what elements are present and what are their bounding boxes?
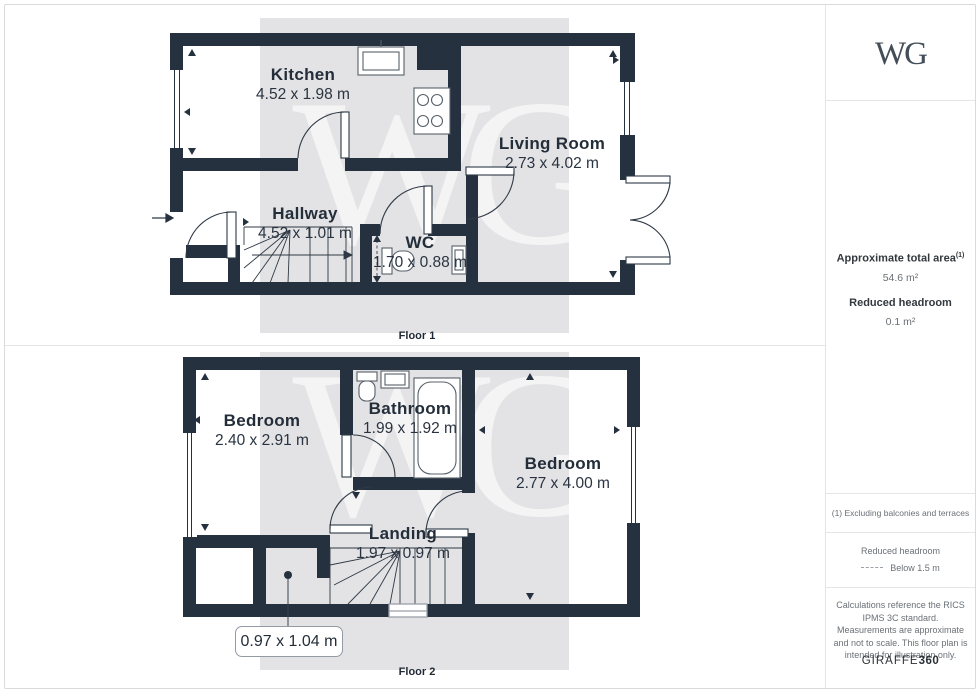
room-dimensions: 2.40 x 2.91 m — [215, 432, 309, 450]
hallway-label: Hallway 4.52 x 1.01 m — [258, 204, 352, 243]
sidebar-divider — [825, 5, 826, 688]
wg-logo: WG — [826, 36, 975, 73]
reduced-headroom-value: 0.1 m² — [826, 316, 975, 328]
floor2-callout-leader — [284, 571, 292, 627]
bedroom-left-label: Bedroom 2.40 x 2.91 m — [215, 411, 309, 450]
legend-row: Below 1.5 m — [826, 563, 975, 573]
room-dimensions: 4.52 x 1.01 m — [258, 225, 352, 243]
room-name: Landing — [356, 524, 450, 544]
giraffe-text: GIRAFFE — [862, 655, 919, 667]
floor1-plan-drawing — [150, 15, 690, 335]
approx-area-text: Approximate total area — [837, 253, 956, 265]
sidebar-divider-logo — [826, 100, 975, 101]
giraffe-360-text: 360 — [919, 655, 940, 667]
kitchen-label: Kitchen 4.52 x 1.98 m — [256, 65, 350, 104]
giraffe360-logo: GIRAFFE360 — [826, 655, 975, 667]
landing-label: Landing 1.97 x 0.97 m — [356, 524, 450, 563]
legend-value: Below 1.5 m — [890, 563, 940, 573]
reduced-headroom-label: Reduced headroom — [826, 297, 975, 309]
legend-title: Reduced headroom — [826, 546, 975, 556]
reduced-headroom-dash-icon — [861, 567, 883, 568]
room-dimensions: 2.73 x 4.02 m — [499, 155, 605, 173]
bedroom-right-label: Bedroom 2.77 x 4.00 m — [516, 454, 610, 493]
room-name: Bedroom — [215, 411, 309, 431]
room-name: Bedroom — [516, 454, 610, 474]
approx-area-footnote-marker: (1) — [956, 252, 965, 259]
room-dimensions: 4.52 x 1.98 m — [256, 86, 350, 104]
sidebar-divider-disclaimer-top — [826, 587, 975, 588]
room-name: Living Room — [499, 134, 605, 154]
floor1-caption: Floor 1 — [399, 330, 436, 342]
floor2-caption: Floor 2 — [399, 666, 436, 678]
area-summary: Approximate total area(1) 54.6 m² Reduce… — [826, 252, 975, 328]
room-name: Bathroom — [363, 399, 457, 419]
wc-label: WC 1.70 x 0.88 m — [373, 233, 467, 272]
living-room-label: Living Room 2.73 x 4.02 m — [499, 134, 605, 173]
bathroom-label: Bathroom 1.99 x 1.92 m — [363, 399, 457, 438]
room-dimensions: 1.99 x 1.92 m — [363, 420, 457, 438]
sidebar-divider-legend-top — [826, 532, 975, 533]
approx-area-label: Approximate total area(1) — [826, 252, 975, 265]
sidebar-divider-footnote-top — [826, 493, 975, 494]
floorplan-page: WG — [0, 0, 980, 693]
room-name: Kitchen — [256, 65, 350, 85]
room-dimensions: 1.70 x 0.88 m — [373, 254, 467, 272]
approx-area-value: 54.6 m² — [826, 272, 975, 284]
room-dimensions: 1.97 x 0.97 m — [356, 545, 450, 563]
room-name: WC — [373, 233, 467, 253]
room-name: Hallway — [258, 204, 352, 224]
footnote: (1) Excluding balconies and terraces — [826, 508, 975, 518]
room-dimensions: 2.77 x 4.00 m — [516, 475, 610, 493]
cupboard-dimension-callout: 0.97 x 1.04 m — [235, 626, 343, 657]
disclaimer-text: Calculations reference the RICS IPMS 3C … — [833, 599, 968, 662]
